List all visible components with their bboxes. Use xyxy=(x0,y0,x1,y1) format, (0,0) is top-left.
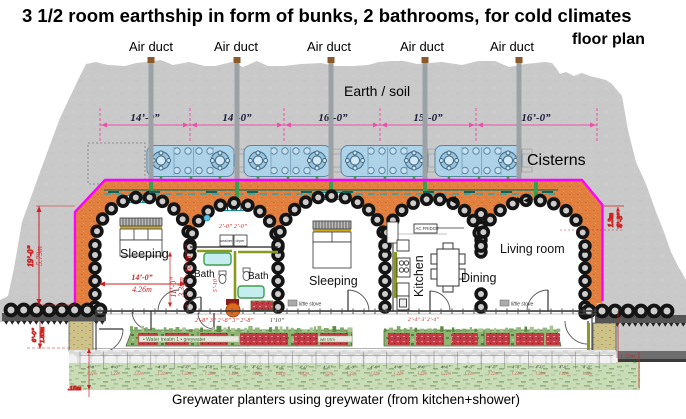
svg-text:4’-0”: 4’-0” xyxy=(182,365,192,370)
svg-text:4’-0”: 4’-0” xyxy=(465,365,475,370)
svg-text:4’-0”: 4’-0” xyxy=(111,365,121,370)
svg-text:4’-0”: 4’-0” xyxy=(418,365,428,370)
svg-text:4’-0”: 4’-0” xyxy=(512,365,522,370)
svg-text:1.22m: 1.22m xyxy=(134,371,144,376)
svg-text:1.22m: 1.22m xyxy=(417,371,427,376)
svg-text:4’-0”: 4’-0” xyxy=(488,365,498,370)
svg-text:4’-0”: 4’-0” xyxy=(276,365,286,370)
svg-text:15’-0”: 15’-0” xyxy=(413,112,443,124)
svg-text:Air duct: Air duct xyxy=(490,39,534,54)
svg-text:Earth / soil: Earth / soil xyxy=(344,83,410,99)
svg-text:Bath: Bath xyxy=(248,271,269,282)
svg-text:floor plan: floor plan xyxy=(572,31,645,48)
svg-text:4’-3”: 4’-3” xyxy=(616,212,624,229)
svg-text:4’-0”: 4’-0” xyxy=(370,365,380,370)
svg-text:1.3m: 1.3m xyxy=(607,212,615,227)
svg-text:1.22m: 1.22m xyxy=(299,371,309,376)
svg-text:dryer: dryer xyxy=(235,238,245,243)
svg-text:4.26m: 4.26m xyxy=(132,285,152,294)
svg-text:Living room: Living room xyxy=(500,242,565,256)
svg-text:little stove: little stove xyxy=(511,302,533,308)
svg-text:4’-0”: 4’-0” xyxy=(347,365,357,370)
svg-text:little stove: little stove xyxy=(299,302,321,308)
svg-text:4’-0”: 4’-0” xyxy=(87,365,97,370)
svg-text:1.22m: 1.22m xyxy=(323,371,333,376)
svg-text:1.22m: 1.22m xyxy=(394,371,404,376)
svg-text:19’-0”: 19’-0” xyxy=(26,245,35,267)
svg-text:1.83m: 1.83m xyxy=(39,327,46,343)
svg-text:1.22m: 1.22m xyxy=(441,371,451,376)
svg-text:4’-0”: 4’-0” xyxy=(536,365,546,370)
svg-text:1.22m: 1.22m xyxy=(370,371,380,376)
svg-text:• Water treatm 1 • greywater: • Water treatm 1 • greywater xyxy=(143,337,206,343)
svg-text:4’-0”: 4’-0” xyxy=(441,365,451,370)
svg-text:1.22m: 1.22m xyxy=(228,371,238,376)
svg-text:1.22m: 1.22m xyxy=(205,371,215,376)
svg-text:1.22m: 1.22m xyxy=(582,371,592,376)
svg-text:1.22m: 1.22m xyxy=(87,371,97,376)
svg-text:4’-0”: 4’-0” xyxy=(300,365,310,370)
svg-text:wtr trtm: wtr trtm xyxy=(320,337,335,342)
svg-text:AC FRIDGE: AC FRIDGE xyxy=(416,226,440,231)
svg-text:6’-0”: 6’-0” xyxy=(31,327,38,342)
svg-text:1.22m: 1.22m xyxy=(512,371,522,376)
svg-text:4’-0”: 4’-0” xyxy=(323,365,333,370)
svg-text:Sleeping: Sleeping xyxy=(309,274,358,288)
svg-text:4’-0”: 4’-0” xyxy=(134,365,144,370)
svg-text:Cisterns: Cisterns xyxy=(527,152,586,169)
svg-text:1.22m: 1.22m xyxy=(559,371,569,376)
svg-text:16’-0”: 16’-0” xyxy=(521,112,551,124)
svg-text:Kitchen: Kitchen xyxy=(412,255,426,297)
svg-text:1.22m: 1.22m xyxy=(488,371,498,376)
svg-text:5’-10”: 5’-10” xyxy=(213,275,219,292)
svg-text:4’-0”: 4’-0” xyxy=(205,365,215,370)
svg-text:2’-0” 2’-0”: 2’-0” 2’-0” xyxy=(219,224,248,230)
svg-text:4’-0”: 4’-0” xyxy=(229,365,239,370)
svg-text:3.35m: 3.35m xyxy=(177,277,186,298)
svg-text:1.22m: 1.22m xyxy=(464,371,474,376)
svg-text:1.22m: 1.22m xyxy=(110,371,120,376)
svg-text:4’-0”: 4’-0” xyxy=(394,365,404,370)
svg-text:14’-0”: 14’-0” xyxy=(130,112,160,124)
svg-text:Sleeping: Sleeping xyxy=(120,247,169,261)
svg-text:2’-4” 3’ 2’-4”: 2’-4” 3’ 2’-4” xyxy=(408,316,439,323)
svg-text:1.22m: 1.22m xyxy=(252,371,262,376)
svg-text:4’-0”: 4’-0” xyxy=(252,365,262,370)
svg-text:1.22m: 1.22m xyxy=(158,371,168,376)
svg-text:5.79m: 5.79m xyxy=(35,246,44,266)
svg-text:Greywater planters using greyw: Greywater planters using greywater (from… xyxy=(172,392,520,407)
svg-text:2’-8” 3” 2’-8” 3” 2’-8”: 2’-8” 3” 2’-8” 3” 2’-8” xyxy=(195,318,254,324)
svg-text:1.22m: 1.22m xyxy=(181,371,191,376)
svg-text:Air duct: Air duct xyxy=(214,39,258,54)
svg-text:4’-0”: 4’-0” xyxy=(158,365,168,370)
svg-text:Air duct: Air duct xyxy=(400,39,444,54)
svg-text:1.22m: 1.22m xyxy=(620,354,636,360)
svg-text:1.22m: 1.22m xyxy=(346,371,356,376)
svg-text:10’-8”: 10’-8” xyxy=(184,251,193,273)
svg-text:1’10”: 1’10” xyxy=(270,318,285,324)
svg-text:Air duct: Air duct xyxy=(307,39,351,54)
svg-text:1.22m: 1.22m xyxy=(535,371,545,376)
svg-text:Dining: Dining xyxy=(461,271,496,285)
svg-text:1.22m: 1.22m xyxy=(276,371,286,376)
svg-text:3 1/2 room earthship in form o: 3 1/2 room earthship in form of bunks, 2… xyxy=(22,5,632,26)
svg-text:4’-0”: 4’-0” xyxy=(583,365,593,370)
svg-text:14’-0”: 14’-0” xyxy=(131,273,152,282)
svg-text:4’-0”: 4’-0” xyxy=(559,365,569,370)
svg-text:Air duct: Air duct xyxy=(129,39,173,54)
svg-text:washer: washer xyxy=(220,238,234,243)
svg-text:Bath: Bath xyxy=(194,269,215,280)
svg-text:.15m: .15m xyxy=(68,385,81,392)
